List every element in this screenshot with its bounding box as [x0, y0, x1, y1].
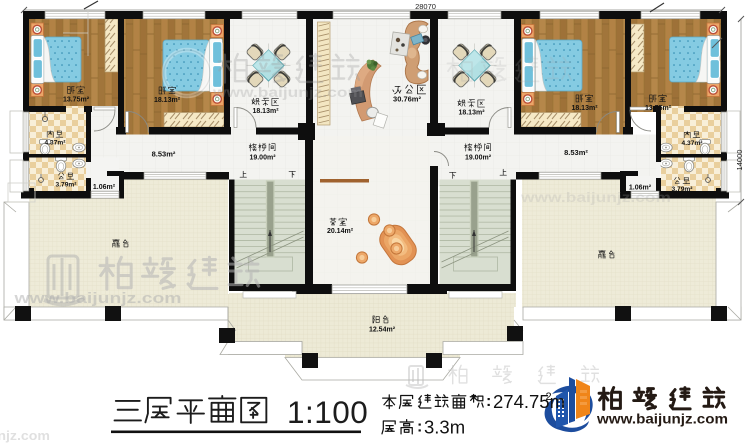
svg-text:30.76m²: 30.76m²: [393, 95, 421, 104]
svg-text:1.06m²: 1.06m²: [629, 185, 652, 192]
svg-text::: :: [486, 393, 491, 410]
svg-text:3.79m²: 3.79m²: [56, 182, 78, 189]
svg-text:20.14m²: 20.14m²: [327, 228, 354, 235]
svg-text:w.baijunjz.com: w.baijunjz.com: [0, 428, 50, 443]
svg-text:1.06m²: 1.06m²: [93, 184, 116, 191]
svg-text:4.37m²: 4.37m²: [45, 140, 67, 147]
svg-text::: :: [417, 419, 422, 436]
svg-text:19.00m²: 19.00m²: [465, 155, 492, 162]
svg-text:19.00m²: 19.00m²: [249, 155, 276, 162]
svg-text:1:100: 1:100: [287, 394, 368, 430]
svg-text:13.75m²: 13.75m²: [645, 105, 672, 112]
svg-text:12.54m²: 12.54m²: [369, 327, 396, 334]
svg-text:www.baijunjz.com: www.baijunjz.com: [13, 290, 181, 307]
svg-text:2: 2: [546, 391, 552, 403]
svg-text:4.37m²: 4.37m²: [682, 140, 704, 147]
svg-text:8.53m²: 8.53m²: [152, 150, 176, 159]
svg-text:14000: 14000: [735, 150, 744, 171]
svg-text:18.13m²: 18.13m²: [571, 105, 598, 112]
svg-text:18.13m²: 18.13m²: [458, 110, 485, 117]
svg-text:3.3m: 3.3m: [424, 417, 465, 438]
svg-text:www.baijunjz.com: www.baijunjz.com: [596, 412, 728, 427]
svg-text:274.75m: 274.75m: [493, 391, 565, 412]
svg-text:3.79m²: 3.79m²: [672, 186, 694, 193]
svg-text:18.13m²: 18.13m²: [252, 108, 279, 115]
svg-text:8.53m²: 8.53m²: [564, 148, 588, 157]
svg-text:28070: 28070: [415, 2, 436, 11]
svg-text:13.75m²: 13.75m²: [63, 97, 90, 104]
svg-text:www.baijunjz.com: www.baijunjz.com: [212, 84, 363, 100]
svg-text:18.13m²: 18.13m²: [154, 97, 181, 104]
